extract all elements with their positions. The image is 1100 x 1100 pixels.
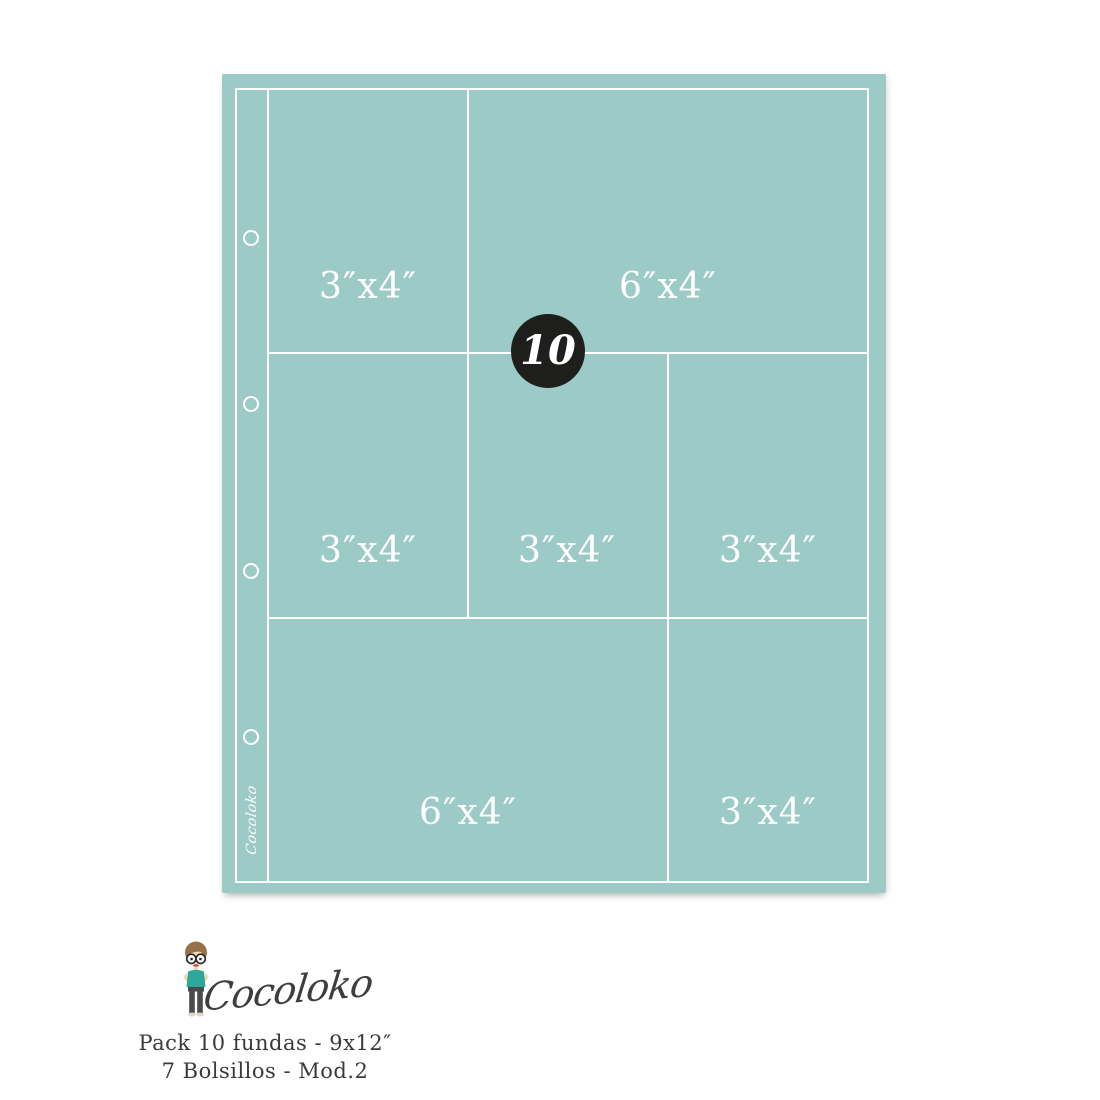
model-description: 7 Bolsillos - Mod.2 (130, 1059, 400, 1083)
product-image: 3″x4″ 6″x4″ 3″x4″ 3″x4″ 3″x4″ 6″x4″ 3″x4… (0, 0, 1100, 1100)
pocket-divider-horizontal (267, 617, 869, 619)
pack-description: Pack 10 fundas - 9x12″ (130, 1031, 400, 1055)
binder-hole (243, 729, 259, 745)
pocket-size-label: 3″x4″ (668, 791, 868, 835)
pocket-size-label: 3″x4″ (668, 529, 868, 573)
binder-hole (243, 230, 259, 246)
brand-logo-text: Cocoloko (199, 945, 378, 1036)
binder-strip-divider (267, 88, 269, 883)
pocket-size-label: 3″x4″ (467, 529, 667, 573)
page-signature-text: Cocoloko (244, 784, 260, 856)
pocket-page: 3″x4″ 6″x4″ 3″x4″ 3″x4″ 3″x4″ 6″x4″ 3″x4… (222, 74, 886, 893)
binder-hole (243, 563, 259, 579)
binder-hole (243, 396, 259, 412)
pocket-size-label: 3″x4″ (268, 265, 468, 309)
pocket-size-label: 6″x4″ (568, 265, 768, 309)
pack-count-badge: 10 (511, 314, 585, 388)
pocket-size-label: 6″x4″ (368, 791, 568, 835)
page-inner-border (235, 88, 869, 883)
pocket-size-label: 3″x4″ (268, 529, 468, 573)
